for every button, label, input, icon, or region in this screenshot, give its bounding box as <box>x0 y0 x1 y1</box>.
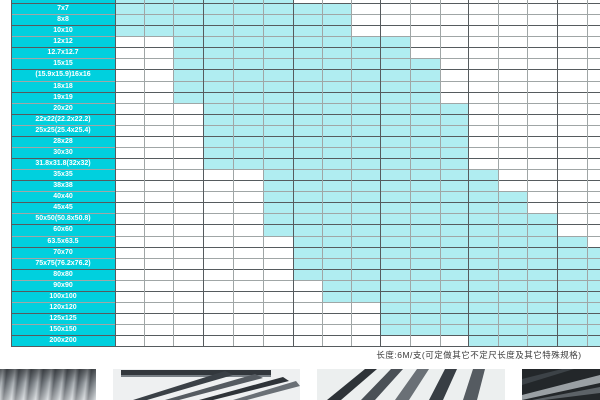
availability-cell-available <box>322 69 351 80</box>
availability-cell-available <box>115 14 144 25</box>
availability-cell-empty <box>233 191 263 202</box>
availability-cell-empty <box>587 158 600 169</box>
availability-cell-empty <box>144 291 173 302</box>
availability-cell-available <box>380 313 410 324</box>
availability-cell-available <box>440 224 468 235</box>
availability-cell-empty <box>115 103 144 114</box>
availability-cell-empty <box>527 69 557 80</box>
availability-cell-empty <box>557 213 587 224</box>
availability-cell-available <box>322 224 351 235</box>
availability-cell-empty <box>144 169 173 180</box>
availability-cell-available <box>410 191 440 202</box>
availability-cell-available <box>293 202 322 213</box>
row-label: 20x20 <box>11 103 115 114</box>
availability-cell-empty <box>144 247 173 258</box>
availability-cell-available <box>380 258 410 269</box>
availability-cell-empty <box>115 58 144 69</box>
availability-cell-available <box>322 92 351 103</box>
availability-cell-available <box>351 92 380 103</box>
availability-cell-available <box>498 335 527 346</box>
availability-cell-empty <box>144 125 173 136</box>
availability-cell-empty <box>263 247 293 258</box>
availability-cell-available <box>263 47 293 58</box>
availability-cell-available <box>440 258 468 269</box>
availability-cell-available <box>380 81 410 92</box>
row-label: 22x22(22.2x22.2) <box>11 114 115 125</box>
availability-cell-empty <box>203 335 233 346</box>
availability-cell-empty <box>351 313 380 324</box>
availability-cell-available <box>527 258 557 269</box>
availability-cell-available <box>498 213 527 224</box>
availability-cell-empty <box>115 69 144 80</box>
availability-cell-available <box>527 236 557 247</box>
availability-cell-empty <box>115 36 144 47</box>
availability-cell-empty <box>557 169 587 180</box>
availability-cell-available <box>380 36 410 47</box>
availability-cell-available <box>173 3 203 14</box>
availability-cell-empty <box>587 180 600 191</box>
row-label: 19x19 <box>11 92 115 103</box>
availability-cell-available <box>380 180 410 191</box>
availability-cell-available <box>203 47 233 58</box>
availability-cell-empty <box>144 58 173 69</box>
availability-cell-available <box>293 14 322 25</box>
availability-cell-empty <box>468 125 498 136</box>
availability-cell-available <box>203 125 233 136</box>
availability-cell-empty <box>468 136 498 147</box>
availability-cell-empty <box>468 158 498 169</box>
availability-cell-available <box>173 36 203 47</box>
availability-cell-empty <box>263 335 293 346</box>
availability-cell-empty <box>322 324 351 335</box>
row-label: 12x12 <box>11 36 115 47</box>
availability-cell-available <box>498 280 527 291</box>
availability-cell-available <box>203 81 233 92</box>
availability-cell-available <box>203 114 233 125</box>
availability-cell-empty <box>498 25 527 36</box>
availability-cell-available <box>410 258 440 269</box>
availability-cell-available <box>587 335 600 346</box>
availability-cell-available <box>322 14 351 25</box>
availability-cell-available <box>144 25 173 36</box>
availability-cell-empty <box>115 92 144 103</box>
availability-cell-available <box>322 3 351 14</box>
availability-cell-available <box>380 136 410 147</box>
availability-cell-empty <box>173 213 203 224</box>
availability-cell-empty <box>440 14 468 25</box>
availability-cell-available <box>410 103 440 114</box>
availability-cell-available <box>557 335 587 346</box>
availability-cell-empty <box>410 3 440 14</box>
availability-cell-available <box>498 269 527 280</box>
availability-cell-available <box>233 103 263 114</box>
availability-cell-empty <box>144 36 173 47</box>
availability-cell-empty <box>468 58 498 69</box>
availability-cell-empty <box>587 25 600 36</box>
availability-cell-available <box>410 280 440 291</box>
availability-cell-empty <box>173 224 203 235</box>
availability-cell-empty <box>144 258 173 269</box>
availability-cell-available <box>293 25 322 36</box>
availability-cell-empty <box>233 258 263 269</box>
availability-cell-available <box>527 335 557 346</box>
availability-cell-empty <box>144 313 173 324</box>
availability-cell-available <box>173 14 203 25</box>
availability-cell-available <box>410 324 440 335</box>
availability-cell-available <box>380 147 410 158</box>
availability-cell-available <box>380 92 410 103</box>
availability-cell-available <box>380 103 410 114</box>
row-label: 15x15 <box>11 58 115 69</box>
availability-cell-available <box>263 136 293 147</box>
availability-cell-empty <box>115 191 144 202</box>
availability-cell-empty <box>115 313 144 324</box>
availability-cell-empty <box>498 180 527 191</box>
availability-cell-empty <box>115 236 144 247</box>
round-steel-bars-photo <box>0 369 96 400</box>
availability-cell-available <box>527 324 557 335</box>
availability-cell-available <box>380 169 410 180</box>
availability-cell-empty <box>587 47 600 58</box>
availability-cell-available <box>440 180 468 191</box>
availability-cell-empty <box>351 335 380 346</box>
availability-cell-available <box>527 224 557 235</box>
availability-cell-available <box>351 291 380 302</box>
availability-cell-available <box>498 324 527 335</box>
availability-cell-available <box>380 69 410 80</box>
availability-cell-available <box>440 158 468 169</box>
availability-cell-available <box>233 25 263 36</box>
availability-cell-available <box>351 191 380 202</box>
availability-cell-empty <box>173 125 203 136</box>
table-caption: 长度:6M/支(可定做其它不定尺长度及其它特殊规格) <box>360 349 598 361</box>
availability-cell-empty <box>293 280 322 291</box>
availability-cell-empty <box>203 302 233 313</box>
availability-cell-available <box>263 69 293 80</box>
availability-cell-available <box>351 47 380 58</box>
availability-cell-empty <box>173 103 203 114</box>
availability-cell-empty <box>233 202 263 213</box>
availability-cell-empty <box>115 280 144 291</box>
availability-cell-available <box>380 125 410 136</box>
availability-cell-empty <box>263 291 293 302</box>
availability-cell-available <box>440 213 468 224</box>
availability-cell-available <box>293 247 322 258</box>
availability-cell-available <box>498 258 527 269</box>
availability-cell-empty <box>527 3 557 14</box>
availability-cell-empty <box>468 81 498 92</box>
availability-cell-available <box>468 247 498 258</box>
row-label: 25x25(25.4x25.4) <box>11 125 115 136</box>
availability-cell-empty <box>587 169 600 180</box>
availability-cell-available <box>233 125 263 136</box>
availability-cell-available <box>498 202 527 213</box>
availability-cell-empty <box>115 114 144 125</box>
availability-cell-available <box>468 258 498 269</box>
availability-cell-empty <box>115 147 144 158</box>
availability-cell-empty <box>587 191 600 202</box>
availability-cell-available <box>233 69 263 80</box>
availability-cell-available <box>410 114 440 125</box>
availability-cell-empty <box>173 236 203 247</box>
row-label: 50x50(50.8x50.8) <box>11 213 115 224</box>
availability-cell-empty <box>557 3 587 14</box>
availability-cell-available <box>203 92 233 103</box>
availability-cell-available <box>440 114 468 125</box>
availability-cell-available <box>557 236 587 247</box>
availability-cell-empty <box>144 236 173 247</box>
availability-cell-empty <box>173 147 203 158</box>
availability-cell-available <box>587 302 600 313</box>
availability-cell-empty <box>527 36 557 47</box>
availability-cell-empty <box>263 313 293 324</box>
availability-cell-empty <box>144 180 173 191</box>
availability-cell-available <box>498 302 527 313</box>
row-label: 60x60 <box>11 224 115 235</box>
availability-cell-available <box>498 291 527 302</box>
availability-cell-empty <box>557 69 587 80</box>
availability-cell-empty <box>587 114 600 125</box>
availability-cell-available <box>527 302 557 313</box>
availability-cell-empty <box>440 3 468 14</box>
availability-cell-empty <box>527 158 557 169</box>
availability-cell-available <box>440 202 468 213</box>
availability-cell-available <box>263 191 293 202</box>
availability-cell-available <box>440 269 468 280</box>
availability-cell-empty <box>498 92 527 103</box>
availability-cell-empty <box>557 14 587 25</box>
availability-cell-available <box>203 69 233 80</box>
availability-cell-empty <box>322 313 351 324</box>
availability-cell-empty <box>115 224 144 235</box>
availability-cell-available <box>410 136 440 147</box>
availability-cell-empty <box>498 147 527 158</box>
availability-cell-available <box>468 291 498 302</box>
availability-cell-empty <box>557 202 587 213</box>
availability-cell-available <box>263 36 293 47</box>
size-spec-table: 6x67x78x810x1012x1212.7x12.715x15(15.9x1… <box>0 0 600 346</box>
availability-cell-available <box>351 213 380 224</box>
availability-cell-empty <box>173 291 203 302</box>
availability-cell-empty <box>263 280 293 291</box>
availability-cell-available <box>263 213 293 224</box>
availability-cell-empty <box>173 158 203 169</box>
row-label: 90x90 <box>11 280 115 291</box>
availability-cell-available <box>233 58 263 69</box>
availability-cell-available <box>322 36 351 47</box>
availability-cell-available <box>410 180 440 191</box>
availability-cell-available <box>203 136 233 147</box>
availability-cell-empty <box>173 169 203 180</box>
availability-cell-empty <box>293 291 322 302</box>
availability-cell-available <box>527 291 557 302</box>
availability-cell-empty <box>233 313 263 324</box>
availability-cell-available <box>440 103 468 114</box>
availability-cell-available <box>322 114 351 125</box>
row-label: 150x150 <box>11 324 115 335</box>
availability-cell-available <box>468 180 498 191</box>
availability-cell-empty <box>233 302 263 313</box>
availability-cell-available <box>293 224 322 235</box>
availability-cell-available <box>440 147 468 158</box>
row-label: 7x7 <box>11 3 115 14</box>
availability-cell-available <box>351 269 380 280</box>
availability-cell-available <box>440 313 468 324</box>
availability-cell-available <box>468 302 498 313</box>
availability-cell-available <box>440 236 468 247</box>
availability-cell-empty <box>527 125 557 136</box>
availability-cell-empty <box>115 324 144 335</box>
row-label: 80x80 <box>11 269 115 280</box>
availability-cell-available <box>380 202 410 213</box>
row-label: 45x45 <box>11 202 115 213</box>
availability-cell-available <box>380 302 410 313</box>
availability-cell-available <box>203 3 233 14</box>
availability-cell-available <box>498 191 527 202</box>
availability-cell-available <box>351 136 380 147</box>
row-label: 200x200 <box>11 335 115 346</box>
availability-cell-empty <box>144 269 173 280</box>
availability-cell-empty <box>380 335 410 346</box>
availability-cell-available <box>293 47 322 58</box>
availability-cell-empty <box>557 147 587 158</box>
availability-cell-empty <box>557 136 587 147</box>
availability-cell-empty <box>173 247 203 258</box>
availability-cell-available <box>440 280 468 291</box>
availability-cell-empty <box>587 224 600 235</box>
dark-steel-illustration <box>522 369 600 400</box>
availability-cell-empty <box>527 92 557 103</box>
availability-cell-empty <box>115 291 144 302</box>
availability-cell-empty <box>233 335 263 346</box>
availability-cell-empty <box>144 92 173 103</box>
availability-cell-available <box>527 269 557 280</box>
availability-cell-available <box>322 269 351 280</box>
availability-cell-empty <box>203 191 233 202</box>
availability-cell-empty <box>410 335 440 346</box>
availability-cell-available <box>557 302 587 313</box>
availability-cell-empty <box>203 180 233 191</box>
availability-cell-empty <box>115 202 144 213</box>
availability-cell-empty <box>263 269 293 280</box>
availability-cell-available <box>322 136 351 147</box>
availability-cell-available <box>498 224 527 235</box>
availability-cell-available <box>498 313 527 324</box>
availability-cell-available <box>410 247 440 258</box>
availability-cell-empty <box>527 25 557 36</box>
availability-cell-empty <box>468 147 498 158</box>
availability-cell-empty <box>293 313 322 324</box>
availability-cell-available <box>293 213 322 224</box>
availability-cell-available <box>263 158 293 169</box>
availability-cell-available <box>351 236 380 247</box>
availability-cell-available <box>263 103 293 114</box>
availability-cell-available <box>233 136 263 147</box>
availability-cell-empty <box>203 202 233 213</box>
availability-cell-available <box>410 58 440 69</box>
availability-cell-available <box>410 224 440 235</box>
availability-cell-empty <box>263 324 293 335</box>
availability-cell-available <box>351 81 380 92</box>
availability-cell-available <box>410 213 440 224</box>
availability-cell-empty <box>293 335 322 346</box>
availability-cell-available <box>233 147 263 158</box>
availability-cell-empty <box>203 169 233 180</box>
availability-cell-available <box>380 247 410 258</box>
square-tubes-illustration <box>317 369 505 400</box>
availability-cell-empty <box>557 47 587 58</box>
availability-cell-empty <box>440 58 468 69</box>
availability-cell-available <box>351 103 380 114</box>
availability-cell-empty <box>527 114 557 125</box>
availability-cell-available <box>203 103 233 114</box>
availability-cell-empty <box>440 69 468 80</box>
availability-cell-empty <box>440 92 468 103</box>
availability-cell-empty <box>498 125 527 136</box>
availability-cell-available <box>587 280 600 291</box>
availability-cell-empty <box>144 191 173 202</box>
availability-cell-available <box>173 92 203 103</box>
availability-cell-empty <box>115 180 144 191</box>
row-label: 30x30 <box>11 147 115 158</box>
availability-cell-empty <box>527 14 557 25</box>
availability-cell-available <box>351 180 380 191</box>
availability-cell-empty <box>263 258 293 269</box>
availability-cell-available <box>587 247 600 258</box>
availability-cell-empty <box>173 258 203 269</box>
availability-cell-available <box>322 291 351 302</box>
availability-cell-available <box>351 69 380 80</box>
availability-cell-available <box>440 191 468 202</box>
availability-cell-empty <box>351 25 380 36</box>
availability-cell-empty <box>233 169 263 180</box>
availability-cell-empty <box>173 136 203 147</box>
availability-cell-available <box>410 69 440 80</box>
availability-cell-available <box>440 136 468 147</box>
availability-cell-available <box>557 291 587 302</box>
availability-cell-available <box>263 169 293 180</box>
availability-cell-available <box>173 58 203 69</box>
availability-cell-available <box>263 147 293 158</box>
availability-cell-empty <box>440 335 468 346</box>
availability-cell-available <box>587 258 600 269</box>
availability-cell-empty <box>233 247 263 258</box>
availability-cell-available <box>322 58 351 69</box>
availability-cell-empty <box>173 180 203 191</box>
availability-cell-empty <box>144 47 173 58</box>
availability-cell-available <box>293 180 322 191</box>
availability-cell-empty <box>203 247 233 258</box>
availability-cell-available <box>233 36 263 47</box>
availability-cell-available <box>380 224 410 235</box>
availability-cell-available <box>293 236 322 247</box>
availability-cell-empty <box>115 81 144 92</box>
catalog-page: 6x67x78x810x1012x1212.7x12.715x15(15.9x1… <box>0 0 600 400</box>
availability-cell-available <box>351 36 380 47</box>
availability-cell-available <box>440 125 468 136</box>
availability-cell-available <box>557 324 587 335</box>
availability-cell-empty <box>293 324 322 335</box>
availability-cell-available <box>440 302 468 313</box>
availability-cell-empty <box>233 180 263 191</box>
availability-cell-available <box>293 114 322 125</box>
availability-cell-empty <box>144 202 173 213</box>
availability-cell-available <box>380 236 410 247</box>
row-label: 35x35 <box>11 169 115 180</box>
availability-cell-available <box>263 224 293 235</box>
availability-cell-available <box>263 125 293 136</box>
availability-cell-empty <box>440 81 468 92</box>
